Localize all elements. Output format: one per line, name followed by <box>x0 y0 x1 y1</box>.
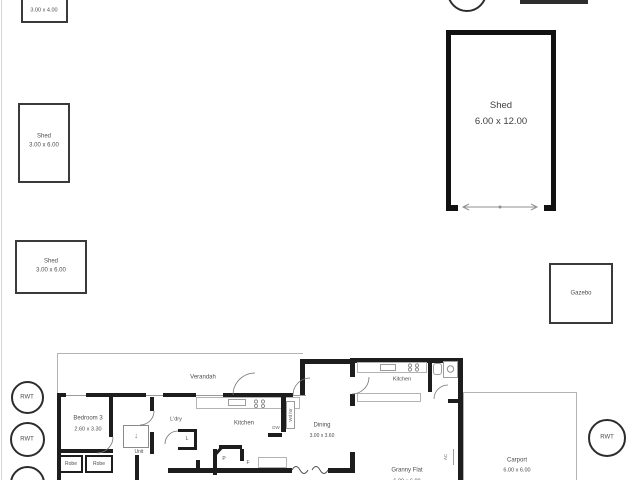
ac-label: AC <box>443 454 449 460</box>
carport-label: Carport <box>507 457 527 465</box>
island-bench <box>258 457 287 468</box>
clipped-structure-bar <box>520 0 588 4</box>
wall <box>257 393 293 397</box>
dining-label: Dining <box>313 422 330 430</box>
granny-flat-label: Granny Flat <box>391 467 422 475</box>
shed-large-wall-top <box>446 30 556 35</box>
laundry-label: L'dry <box>170 417 182 424</box>
dining-dims: 3.00 x 3.60 <box>310 433 335 439</box>
down-arrow-icon: ↓ <box>134 431 138 441</box>
small-structure-dims: 3.00 x 4.00 <box>30 8 57 15</box>
verandah-label: Verandah <box>190 374 216 382</box>
floor-plan-canvas: 3.00 x 4.00 Shed 3.00 x 6.00 Shed 3.00 x… <box>0 0 640 480</box>
carport-dims: 6.00 x 6.00 <box>503 468 530 475</box>
wall <box>448 399 458 403</box>
wall <box>300 359 305 395</box>
shed-large-dims: 6.00 x 12.00 <box>475 116 527 128</box>
scan-edge-line <box>1 0 2 480</box>
robe-label: Robe <box>65 461 77 467</box>
wall <box>240 449 244 461</box>
rainwater-tank-label: RWT <box>600 434 614 442</box>
toilet <box>433 363 442 375</box>
wood-heater-label: Wd htr <box>288 408 294 421</box>
wall <box>59 449 113 453</box>
bedroom3-label: Bedroom 3 <box>73 415 102 423</box>
wall <box>268 433 282 437</box>
wall <box>150 432 154 454</box>
fridge-label: F <box>246 460 249 466</box>
wall <box>219 445 242 449</box>
linen-label: L <box>186 436 189 442</box>
rainwater-tank-label: RWT <box>20 394 34 402</box>
shed-large-wall-stub-left <box>446 205 458 211</box>
ac-bracket <box>453 449 454 465</box>
wall <box>428 362 432 392</box>
dishwasher-label: DW <box>272 425 280 431</box>
clipped-tank-circle <box>447 0 487 12</box>
robe-label: Robe <box>93 461 105 467</box>
shed-large-wall-stub-right <box>544 205 556 211</box>
shed-lower-left-dims: 3.00 x 6.00 <box>36 267 66 275</box>
wall <box>300 359 353 364</box>
pantry-label: P <box>222 456 225 462</box>
granny-flat-island <box>357 393 421 402</box>
wall <box>196 460 200 470</box>
wall <box>350 394 355 406</box>
shed-upper-left-name: Shed <box>37 133 51 141</box>
wall <box>135 455 139 480</box>
granny-flat-kitchen-label: Kitchen <box>393 377 411 384</box>
wall <box>350 363 355 377</box>
wall <box>178 447 197 450</box>
vanity <box>443 361 458 378</box>
shed-upper-left-dims: 3.00 x 6.00 <box>29 142 59 150</box>
verandah-edge-line <box>57 353 303 354</box>
shed-large-wall-right <box>551 30 556 211</box>
wall <box>86 393 146 397</box>
wall <box>350 452 355 473</box>
break-line-squiggle <box>292 467 328 474</box>
rainwater-tank-label: RWT <box>20 436 34 444</box>
wall <box>168 468 292 473</box>
shed-opening-arrow-icon <box>463 204 537 210</box>
sink <box>380 364 396 371</box>
kitchen-label: Kitchen <box>234 420 254 428</box>
unit-label: Unit <box>135 449 144 455</box>
rainwater-tank-clipped <box>10 466 45 480</box>
sink <box>228 399 246 406</box>
verandah-edge-line <box>57 353 58 393</box>
wall <box>109 397 113 437</box>
shed-large-wall-left <box>446 30 451 211</box>
gazebo-label: Gazebo <box>570 290 591 298</box>
bedroom3-dims: 2.60 x 3.30 <box>74 427 101 434</box>
wall <box>150 397 154 411</box>
shed-large-name: Shed <box>490 100 512 112</box>
wall <box>163 393 196 397</box>
shed-lower-left-name: Shed <box>44 258 58 266</box>
